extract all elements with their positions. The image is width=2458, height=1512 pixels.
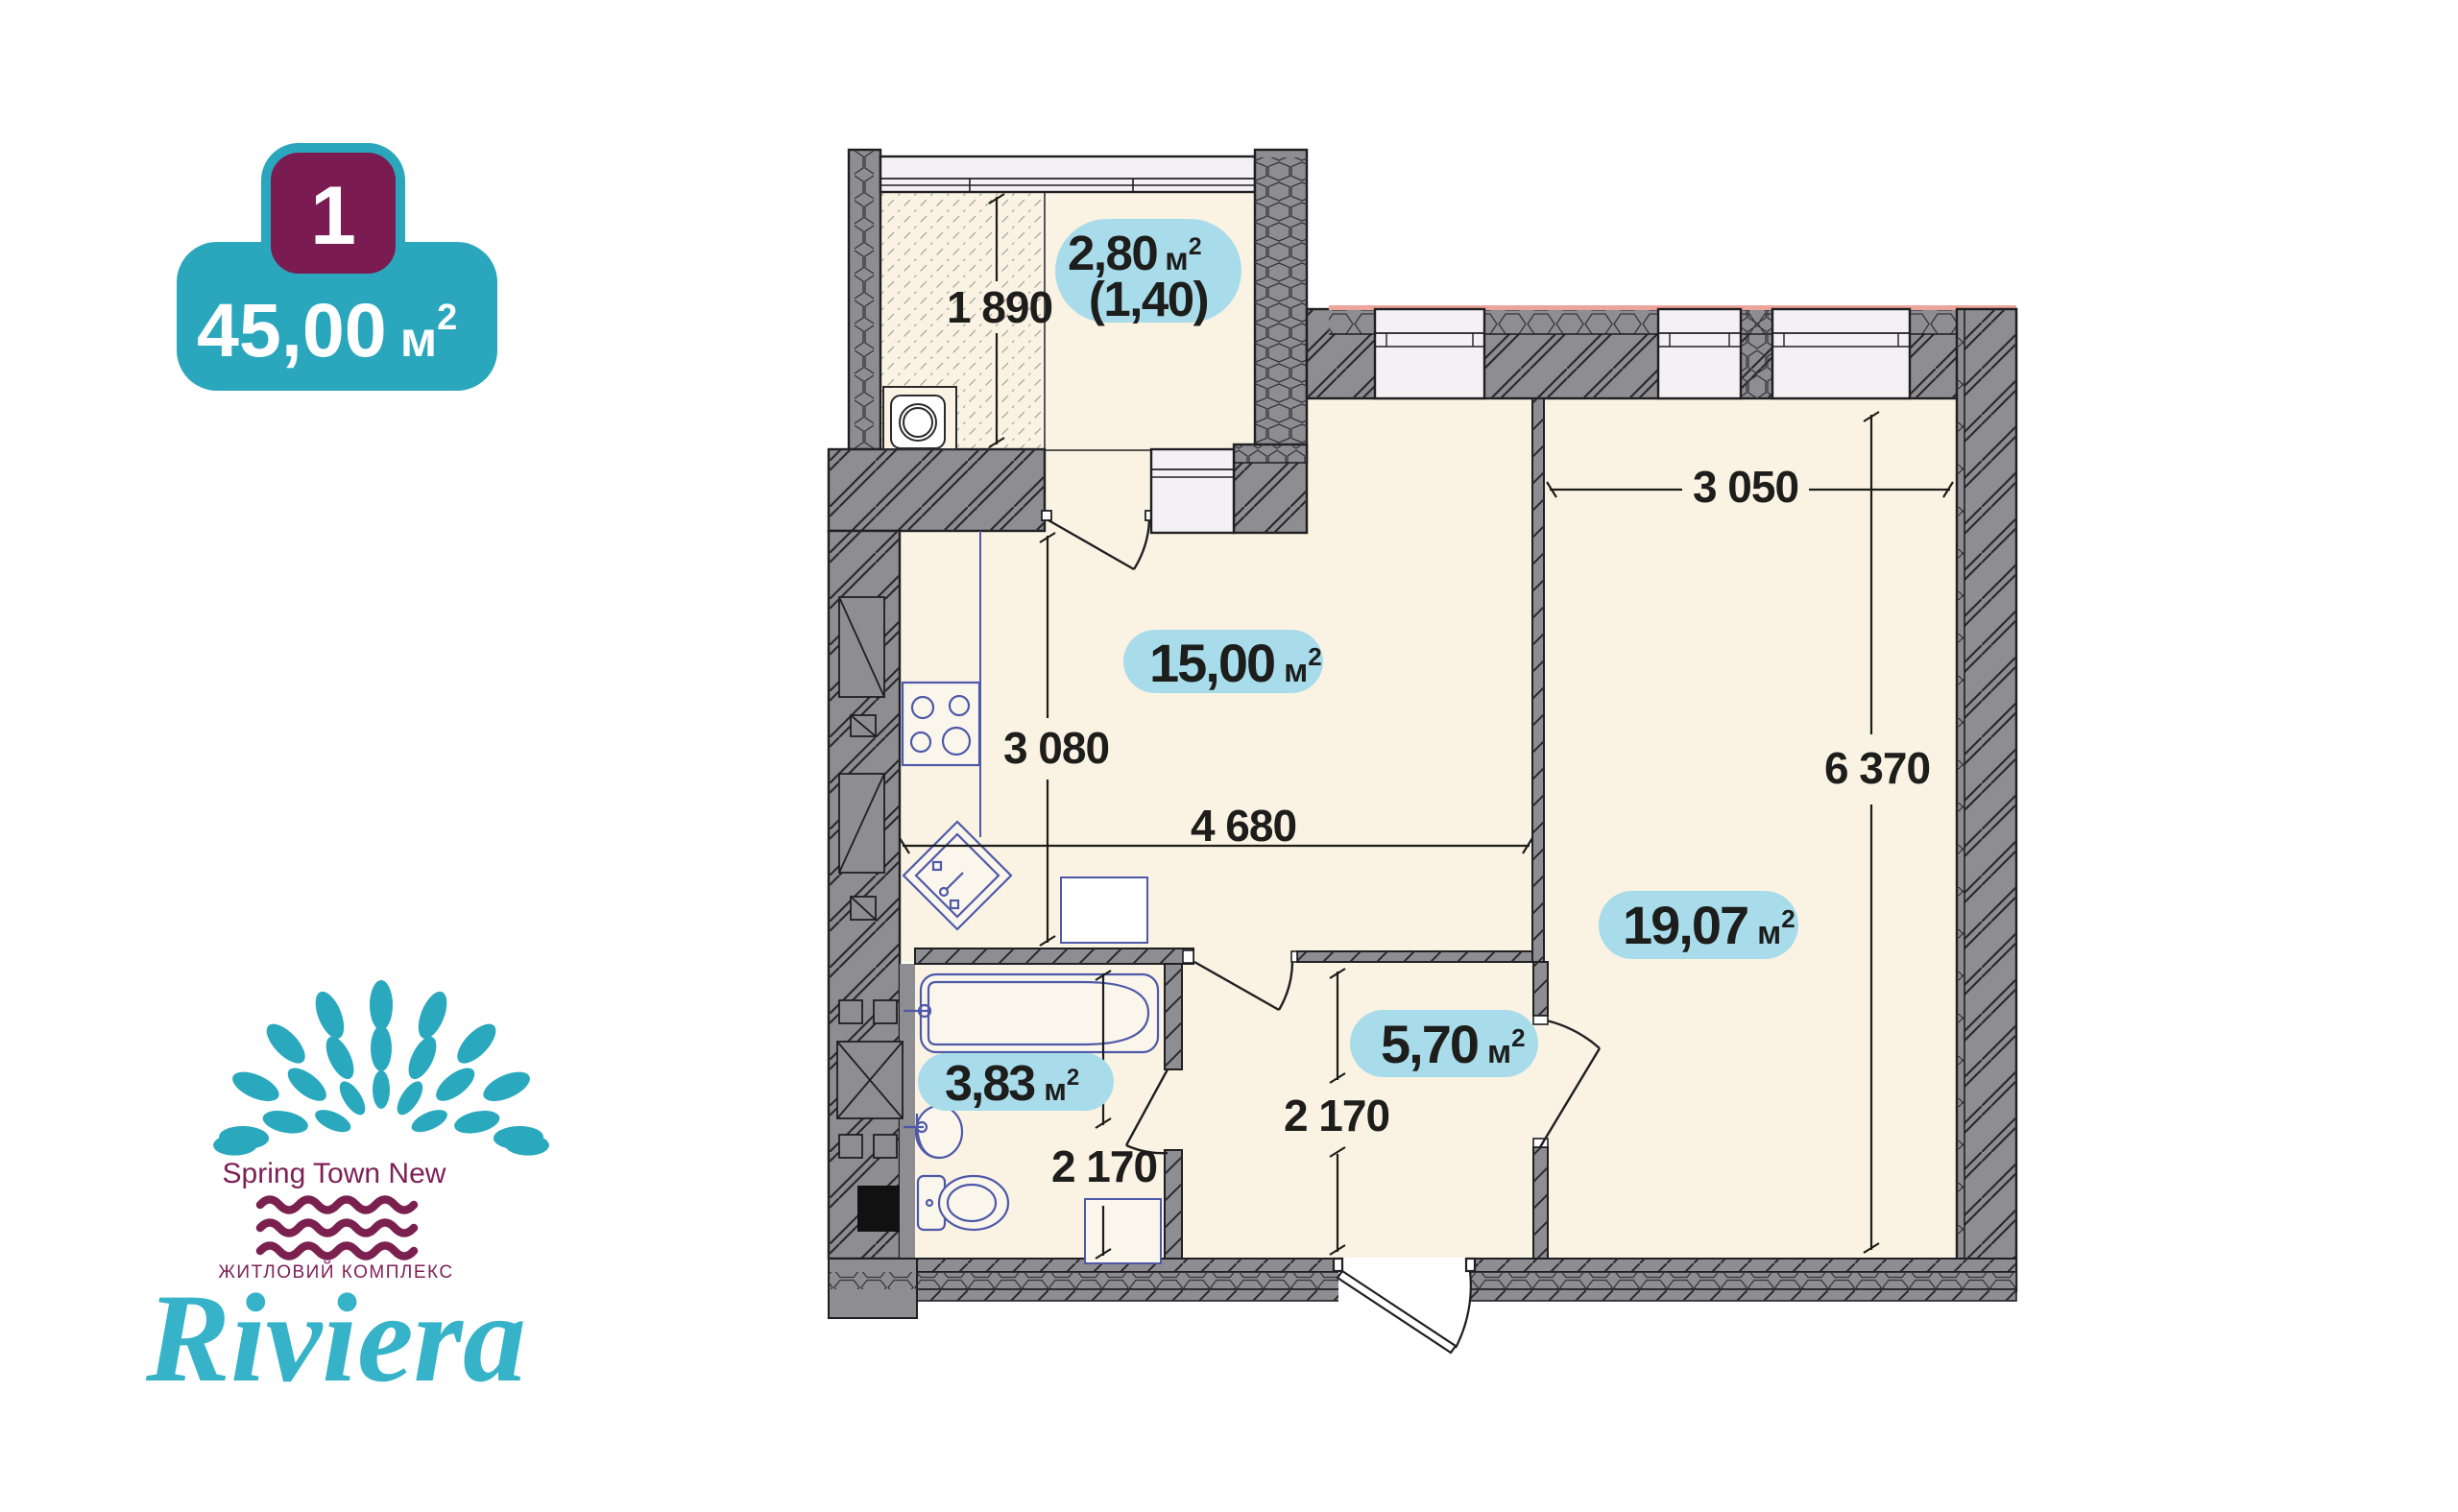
svg-text:3 080: 3 080 — [1003, 723, 1109, 773]
svg-text:Spring Town New: Spring Town New — [223, 1158, 446, 1189]
svg-text:1: 1 — [310, 170, 356, 262]
svg-text:3 050: 3 050 — [1693, 462, 1798, 512]
svg-text:1 890: 1 890 — [947, 282, 1052, 332]
svg-text:4 680: 4 680 — [1191, 801, 1296, 851]
svg-text:6 370: 6 370 — [1824, 743, 1930, 793]
svg-text:2 170: 2 170 — [1051, 1141, 1157, 1191]
svg-text:Riviera: Riviera — [145, 1267, 526, 1408]
svg-text:2 170: 2 170 — [1284, 1091, 1389, 1140]
svg-text:(1,40): (1,40) — [1089, 272, 1208, 326]
